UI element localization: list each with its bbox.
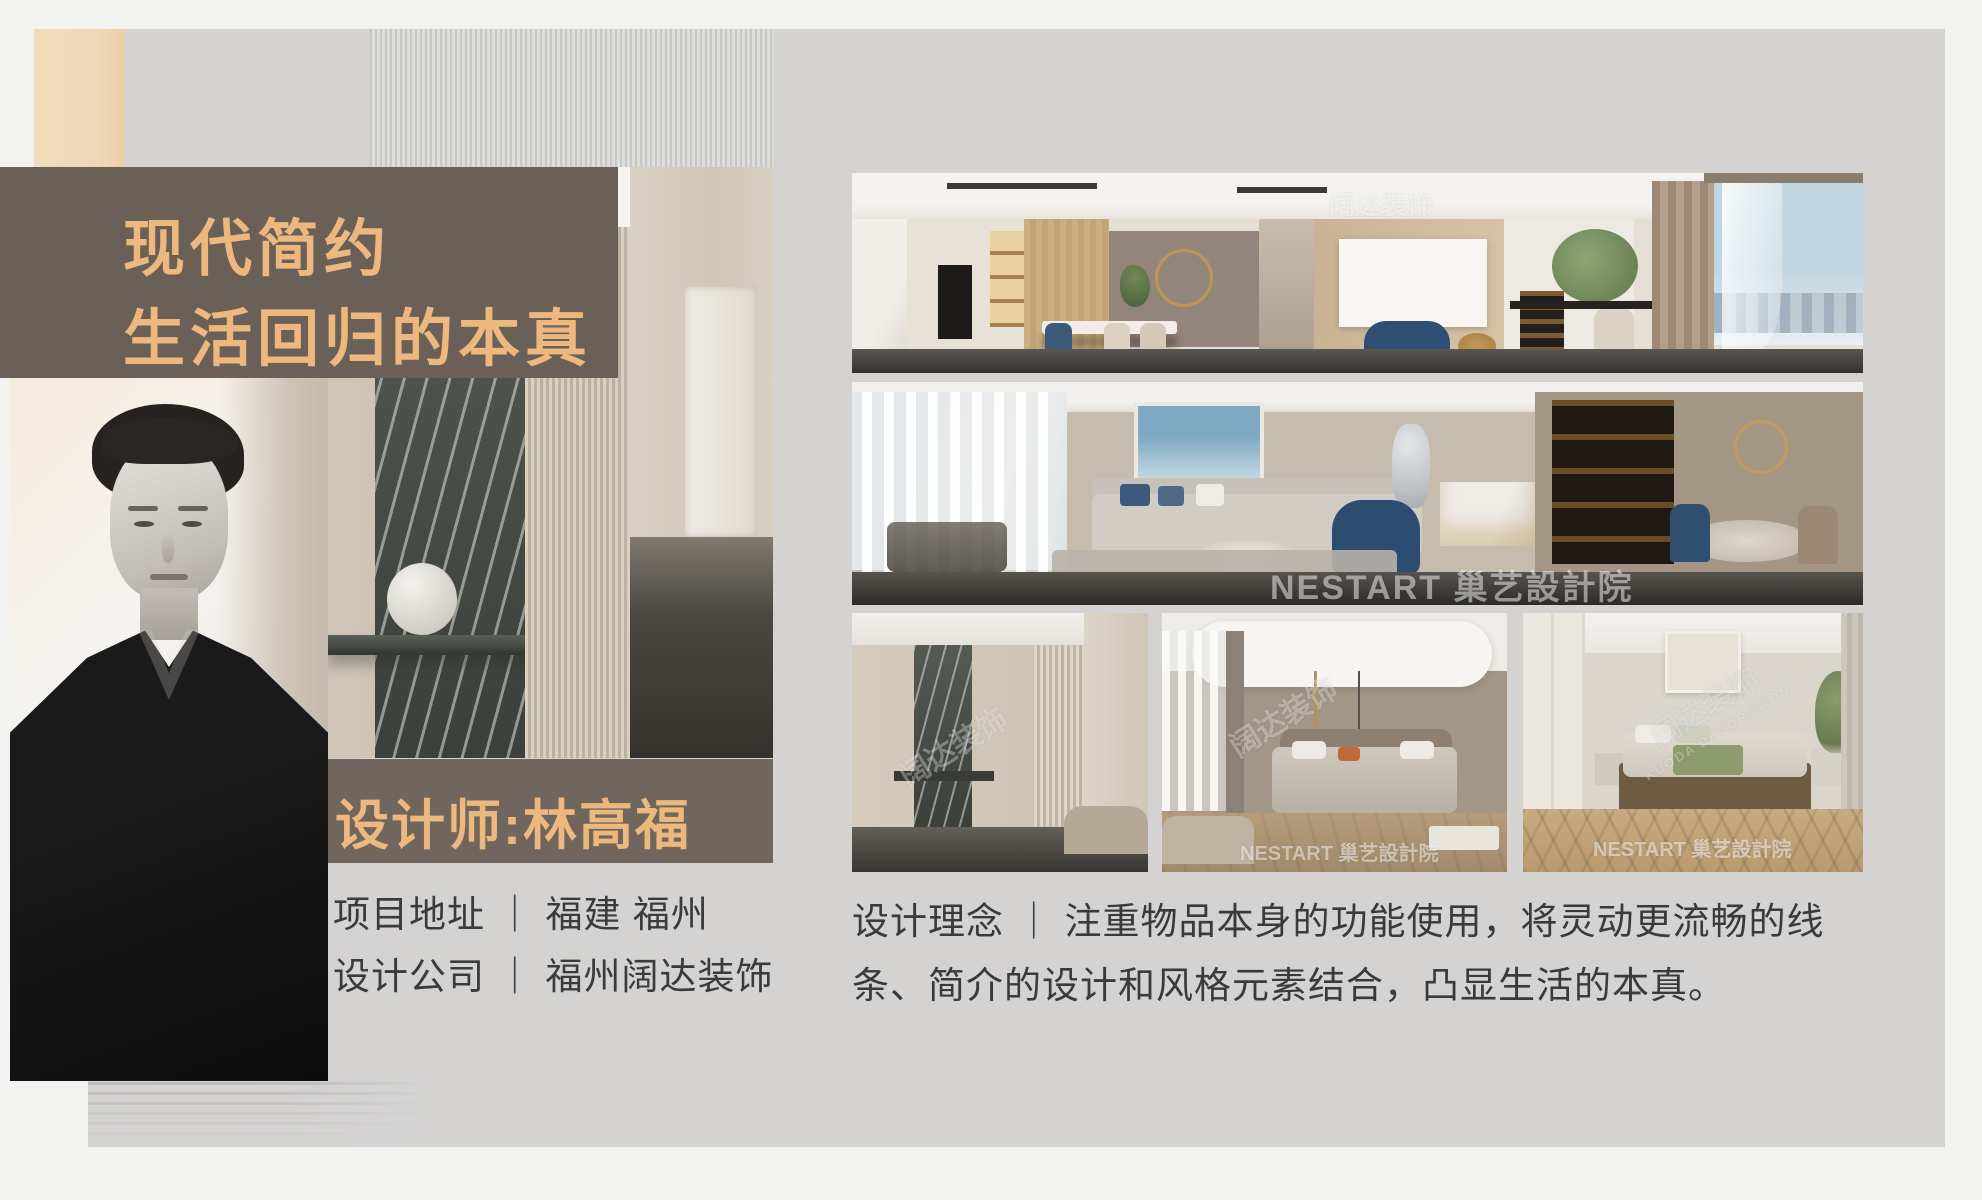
title-block: 现代简约 生活回归的本真 [0,167,618,378]
project-address: 项目地址 ｜ 福建 福州 [333,884,709,938]
r2-pillow-blue2 [1158,486,1184,506]
title-line1: 现代简约 [123,198,391,288]
portrait-eyebrow-left [128,506,158,511]
r2-tea-table-set [887,522,1007,572]
r3c-herringbone-floor [1523,809,1863,872]
fade-stripes-decoration [88,1082,421,1145]
r3a-marble-strip [914,645,972,830]
r3b-pillow-white1 [1292,741,1326,759]
pinstripe-decoration [370,29,773,167]
r3c-wall-art [1665,631,1741,693]
portrait-eye-right [182,521,202,527]
r3b-pillow-white2 [1400,741,1434,759]
r1-lit-shelf-niche [990,231,1024,327]
r1-floor [852,349,1863,373]
r2-bear-sculpture [1392,424,1430,508]
r3c-pillow2 [1675,725,1711,743]
r2-marble-console [1440,482,1535,546]
design-concept-text: 设计理念 ｜ 注重物品本身的功能使用，将灵动更流畅的线条、简介的设计和风格元素结… [852,890,1878,1018]
portrait-hair-fringe [102,418,238,464]
r3b-curtain-gray [1226,631,1244,821]
r1-gold-ring-art [1155,249,1213,307]
r3b-pillow-orange [1338,747,1360,761]
r1-plant-large [1552,229,1638,303]
r2-dining-chair-blue [1670,504,1710,562]
hallway-floor [630,537,773,758]
sphere-ornament [387,563,457,635]
designer-portrait [10,378,328,1081]
portrait-mouth [150,574,188,580]
r2-seascape-painting [1134,402,1264,486]
r1-sheer-curtain [1722,181,1782,349]
r3c-nightstand-right [1811,749,1841,785]
r1-ac-vent2 [1237,187,1327,193]
r2-floor [852,572,1863,605]
r1-window-frame-top [1704,173,1863,183]
design-company: 设计公司 ｜ 福州阔达装饰 [333,946,774,1000]
photo-second-bedroom: 阔达装饰 KUODA DECORATION NESTART 巢艺設計院 [1523,613,1863,872]
r3b-window-sheer [1162,631,1234,811]
r3b-bench-sofa [1162,816,1254,864]
title-line2: 生活回归的本真 [123,288,592,378]
r1-ac-vent1 [947,183,1097,189]
r1-curtain-brown [1652,181,1714,353]
r1-projection-screen [1339,239,1487,327]
r3a-shelf [894,771,994,781]
r1-plant [1120,265,1150,307]
r1-oven-column [938,265,972,339]
designer-badge-label: 设计师:林高福 [335,781,691,860]
r3c-wardrobe [1523,613,1585,818]
photo-master-bedroom: 阔达装饰 NESTART 巢艺設計院 [1162,613,1507,872]
portrait-eye-left [134,521,154,527]
r3c-pillow1 [1635,725,1671,743]
photo-corridor-detail: 阔达装饰 [852,613,1148,872]
r2-gold-ring-light [1734,420,1788,474]
r2-pillow-blue1 [1120,484,1150,506]
r3b-tv-cabinet [1429,826,1499,850]
r2-pillow-white [1196,484,1224,506]
r3b-pendant [1358,671,1360,733]
portrait-eyebrow-right [178,506,208,511]
portrait-nose-shadow [162,533,174,563]
tan-accent-block [34,29,125,167]
r3a-sofa-arm [1064,806,1148,854]
hallway-doorframe [685,287,757,537]
photo-living-dining-panorama: 阔达装饰 [852,173,1863,373]
poster-page: { "page": { "background": "#f2f2f1", "ca… [0,0,1982,1200]
r2-wine-cabinet [1552,400,1674,564]
r3c-curtain [1841,613,1863,838]
photo-living-room-panorama: NESTART 巢艺設計院 [852,382,1863,605]
r2-dining-chair-taupe [1798,506,1838,564]
r3c-green-throw [1673,745,1743,775]
